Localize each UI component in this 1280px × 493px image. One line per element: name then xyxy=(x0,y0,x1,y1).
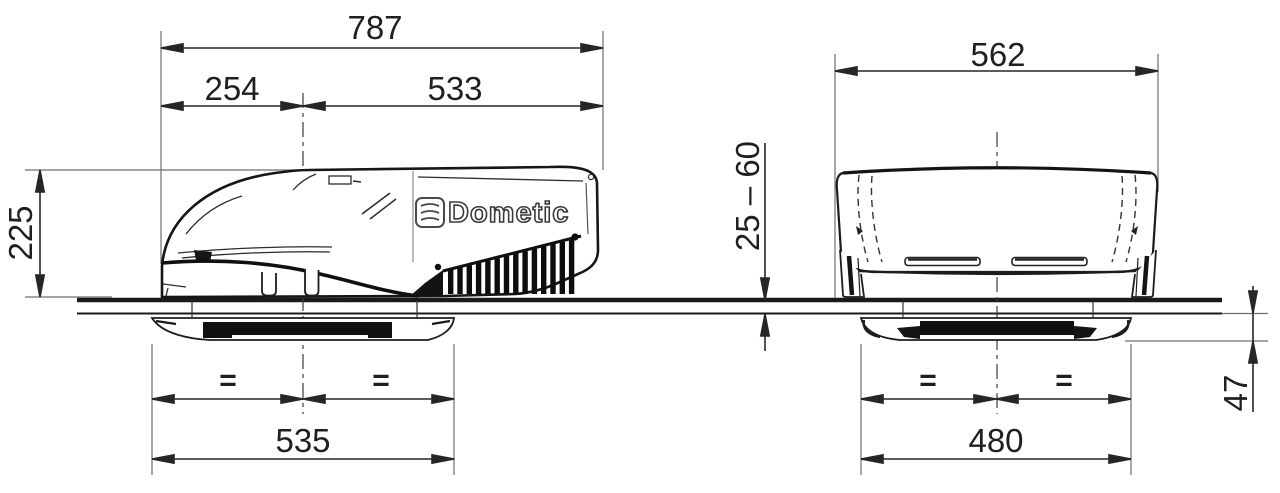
dim-side-front-section: 254 xyxy=(172,69,292,109)
equal-mark-front-left: = xyxy=(908,361,948,401)
equal-mark-side-right: = xyxy=(361,361,401,401)
dometic-logo-text: Dometic xyxy=(448,197,569,229)
side-view-interior-box xyxy=(152,318,454,340)
dim-side-cutout-width: 535 xyxy=(243,421,363,461)
equal-mark-side-left: = xyxy=(208,361,248,401)
dim-side-height: 225 xyxy=(1,173,41,293)
dim-interior-unit-height: 47 xyxy=(1216,333,1256,453)
front-view-interior-box xyxy=(861,301,1131,340)
dim-roof-thickness-range: 25 – 60 xyxy=(728,111,768,281)
dim-side-rear-section: 533 xyxy=(395,69,515,109)
equal-mark-front-right: = xyxy=(1044,361,1084,401)
dim-side-total-length: 787 xyxy=(315,8,435,48)
dimension-drawing: 787 254 533 225 535 = = 562 25 – 60 480 … xyxy=(0,0,1280,493)
dim-front-cutout-width: 480 xyxy=(936,421,1056,461)
dim-front-total-width: 562 xyxy=(938,35,1058,75)
roof-section-lines xyxy=(77,300,1222,314)
side-view-unit xyxy=(162,167,598,318)
